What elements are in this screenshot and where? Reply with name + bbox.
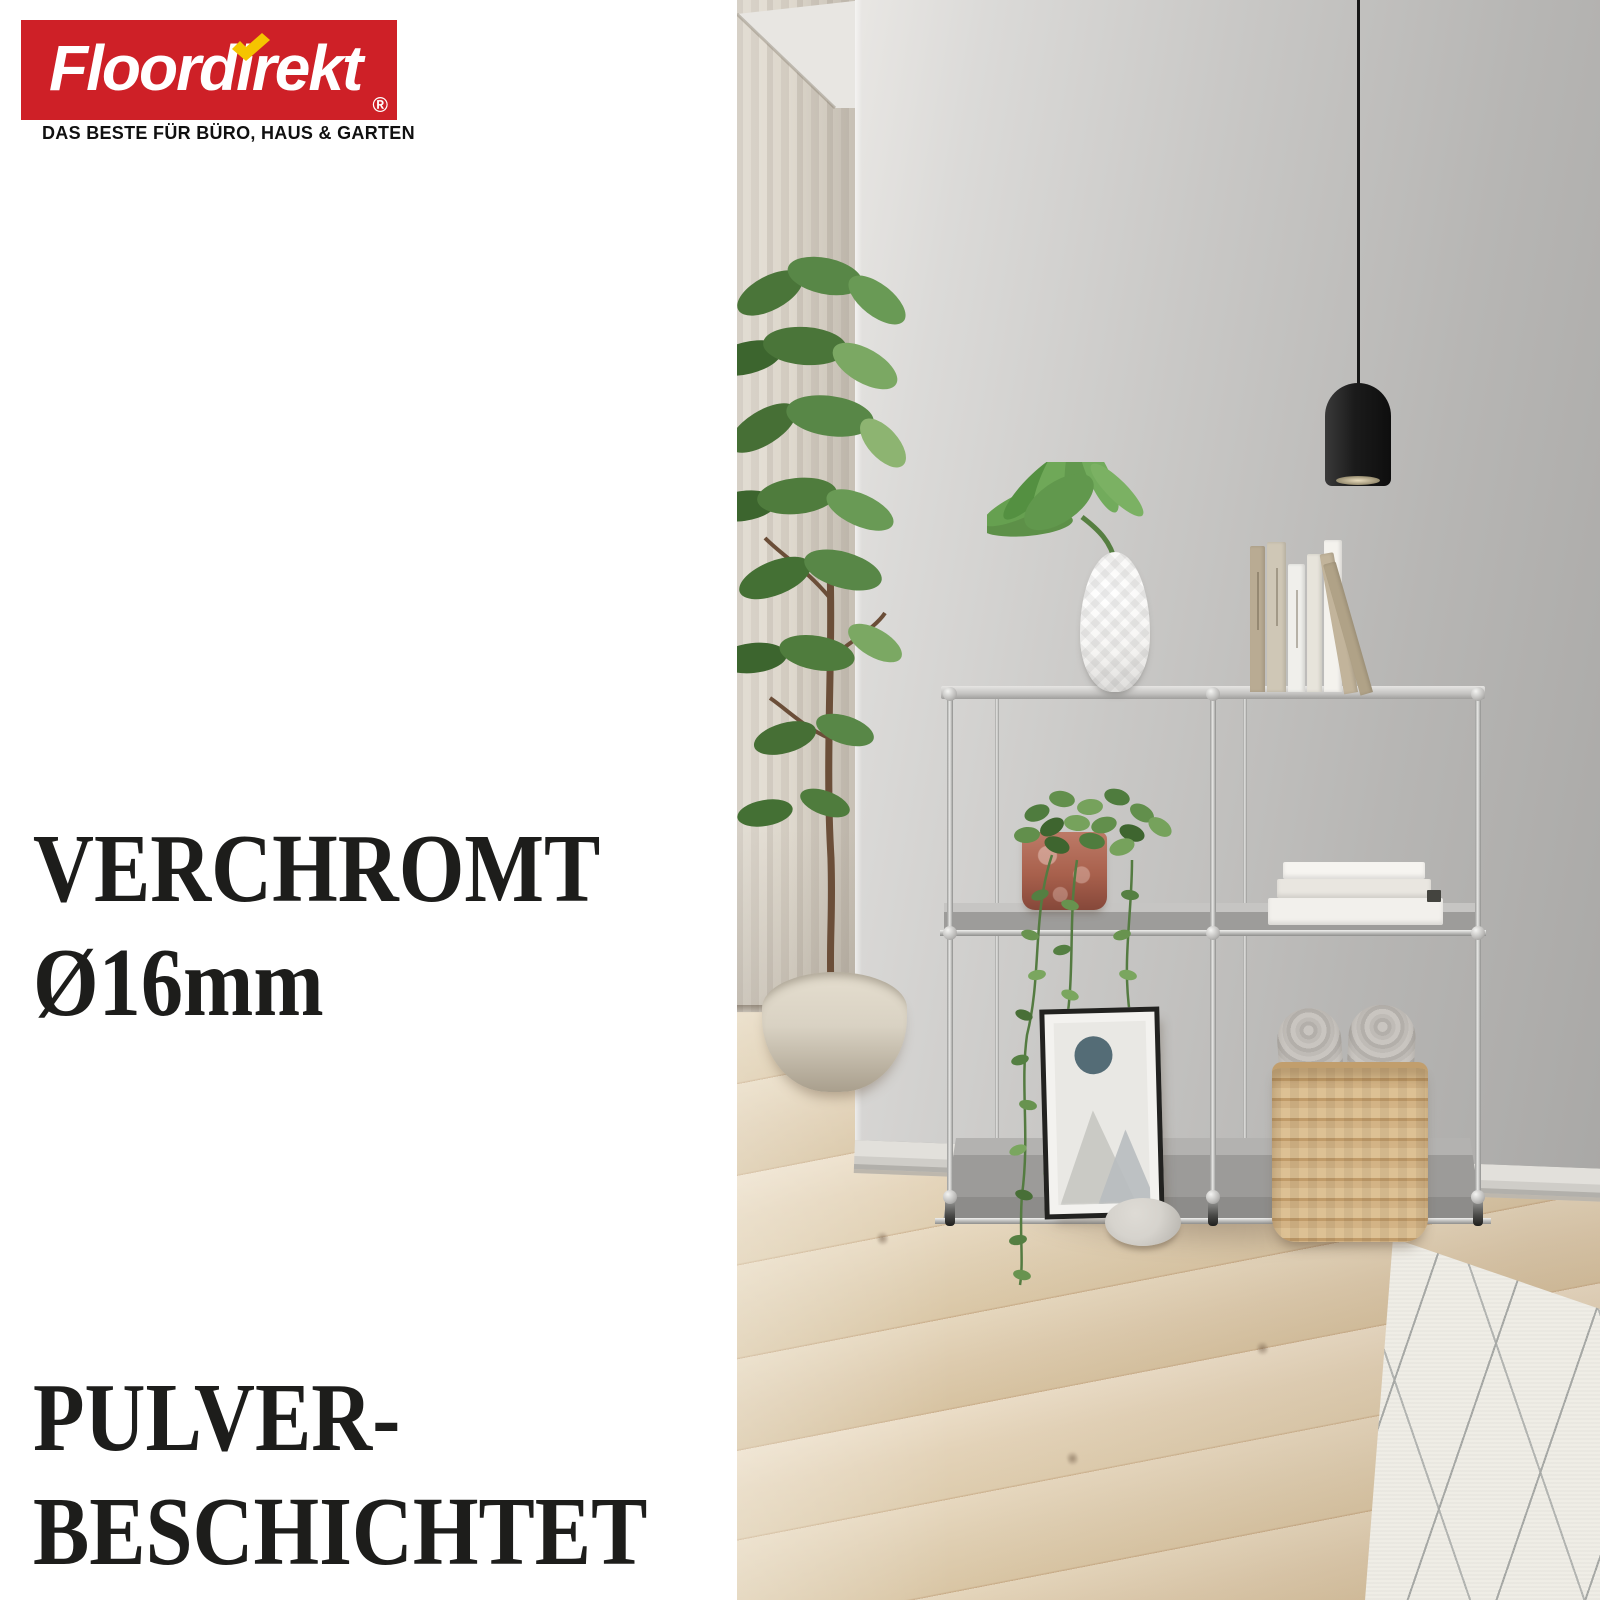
- shelf-connector: [1471, 1190, 1485, 1204]
- framed-abstract-art: [1039, 1006, 1164, 1219]
- shelf-connector: [1206, 687, 1220, 701]
- lamp-bulb-glow: [1336, 476, 1380, 485]
- claim-chrome: VERCHROMT Ø16mm: [33, 812, 600, 1041]
- shelf-connector: [943, 1190, 957, 1204]
- stacked-book: [1268, 898, 1443, 925]
- lamp-cord: [1357, 0, 1360, 388]
- brand-tagline: DAS BESTE FÜR BÜRO, HAUS & GARTEN: [42, 123, 415, 144]
- text-panel: Floordirekt ® DAS BESTE FÜR BÜRO, HAUS &…: [0, 0, 737, 1600]
- checkmark-icon: [229, 32, 271, 62]
- book-page-block: [1427, 890, 1441, 902]
- shelf-back-leg: [1243, 694, 1247, 1194]
- floordirekt-logo: Floordirekt ®: [21, 20, 397, 120]
- art-circle: [1074, 1036, 1113, 1075]
- black-pendant-lamp: [1325, 383, 1391, 486]
- product-banner: Floordirekt ® DAS BESTE FÜR BÜRO, HAUS &…: [0, 0, 1600, 1600]
- book-spine: [1250, 546, 1265, 692]
- claim-powder-line1: PULVER-: [33, 1361, 647, 1475]
- stacked-book: [1277, 879, 1431, 898]
- decorative-pebble: [1105, 1198, 1181, 1246]
- registered-trademark: ®: [373, 94, 388, 118]
- shelf-foot: [945, 1202, 955, 1226]
- shelf-connector: [943, 926, 957, 940]
- abstract-artwork: [1054, 1021, 1151, 1205]
- claim-chrome-line1: VERCHROMT: [33, 812, 600, 926]
- book-spine: [1288, 564, 1305, 692]
- shelf-connector: [1471, 926, 1485, 940]
- back-wall: [855, 0, 1600, 1215]
- book-spine: [1267, 542, 1286, 692]
- shelf-connector: [1471, 687, 1485, 701]
- woven-rope-basket: [1272, 1062, 1428, 1242]
- row-of-books: [1250, 540, 1430, 692]
- ceiling: [737, 0, 863, 114]
- shelf-connector: [943, 687, 957, 701]
- shelf-foot: [1473, 1202, 1483, 1226]
- logo-wordmark: Floordirekt: [49, 18, 361, 118]
- fiddle-leaf-fig-plant: [737, 238, 920, 1018]
- room-photo: [737, 0, 1600, 1600]
- stacked-book: [1283, 862, 1425, 879]
- claim-powder-line2: BESCHICHTET: [33, 1475, 647, 1589]
- book-spine: [1307, 554, 1322, 692]
- shelf-leg: [1475, 692, 1481, 1212]
- shelf-leg: [947, 692, 953, 1212]
- claim-powder: PULVER- BESCHICHTET: [33, 1361, 647, 1590]
- claim-chrome-line2: Ø16mm: [33, 926, 600, 1040]
